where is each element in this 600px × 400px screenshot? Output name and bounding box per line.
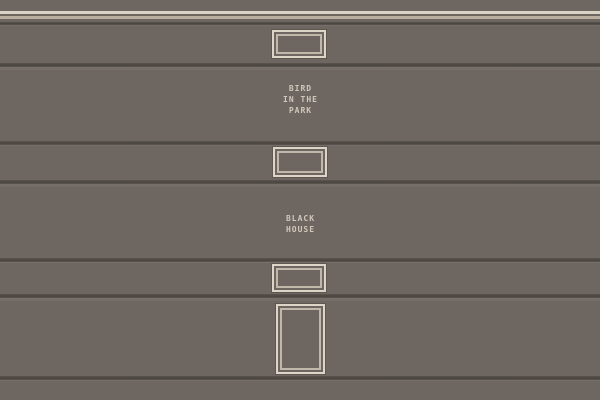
title-bird-in-the-park: BIRD IN THE PARK [0, 83, 600, 116]
panel-seam [0, 258, 600, 262]
top-trim-stripe-bright [0, 11, 600, 14]
title-line: BLACK [0, 213, 600, 224]
title-line: BIRD [0, 83, 600, 94]
frame-inner-border [280, 308, 321, 370]
panel-seam [0, 63, 600, 67]
window-frame-middle [273, 147, 327, 177]
frame-inner-border [276, 268, 322, 288]
stacked-panels-illustration: BIRD IN THE PARK BLACK HOUSE [0, 0, 600, 400]
panel-seam [0, 376, 600, 380]
frame-inner-border [277, 151, 323, 173]
panel-highlight [0, 68, 600, 70]
window-frame-lower [272, 264, 326, 292]
panel-highlight [0, 185, 600, 187]
panel-seam [0, 22, 600, 25]
panel-seam [0, 294, 600, 298]
title-line: IN THE [0, 94, 600, 105]
panel-highlight [0, 299, 600, 301]
frame-inner-border [276, 34, 322, 54]
top-trim-stripe-muted [0, 16, 600, 19]
door-frame [276, 304, 325, 374]
title-line: PARK [0, 105, 600, 116]
title-black-house: BLACK HOUSE [0, 213, 600, 235]
window-frame-top [272, 30, 326, 58]
panel-seam [0, 180, 600, 184]
panel-seam [0, 141, 600, 145]
title-line: HOUSE [0, 224, 600, 235]
